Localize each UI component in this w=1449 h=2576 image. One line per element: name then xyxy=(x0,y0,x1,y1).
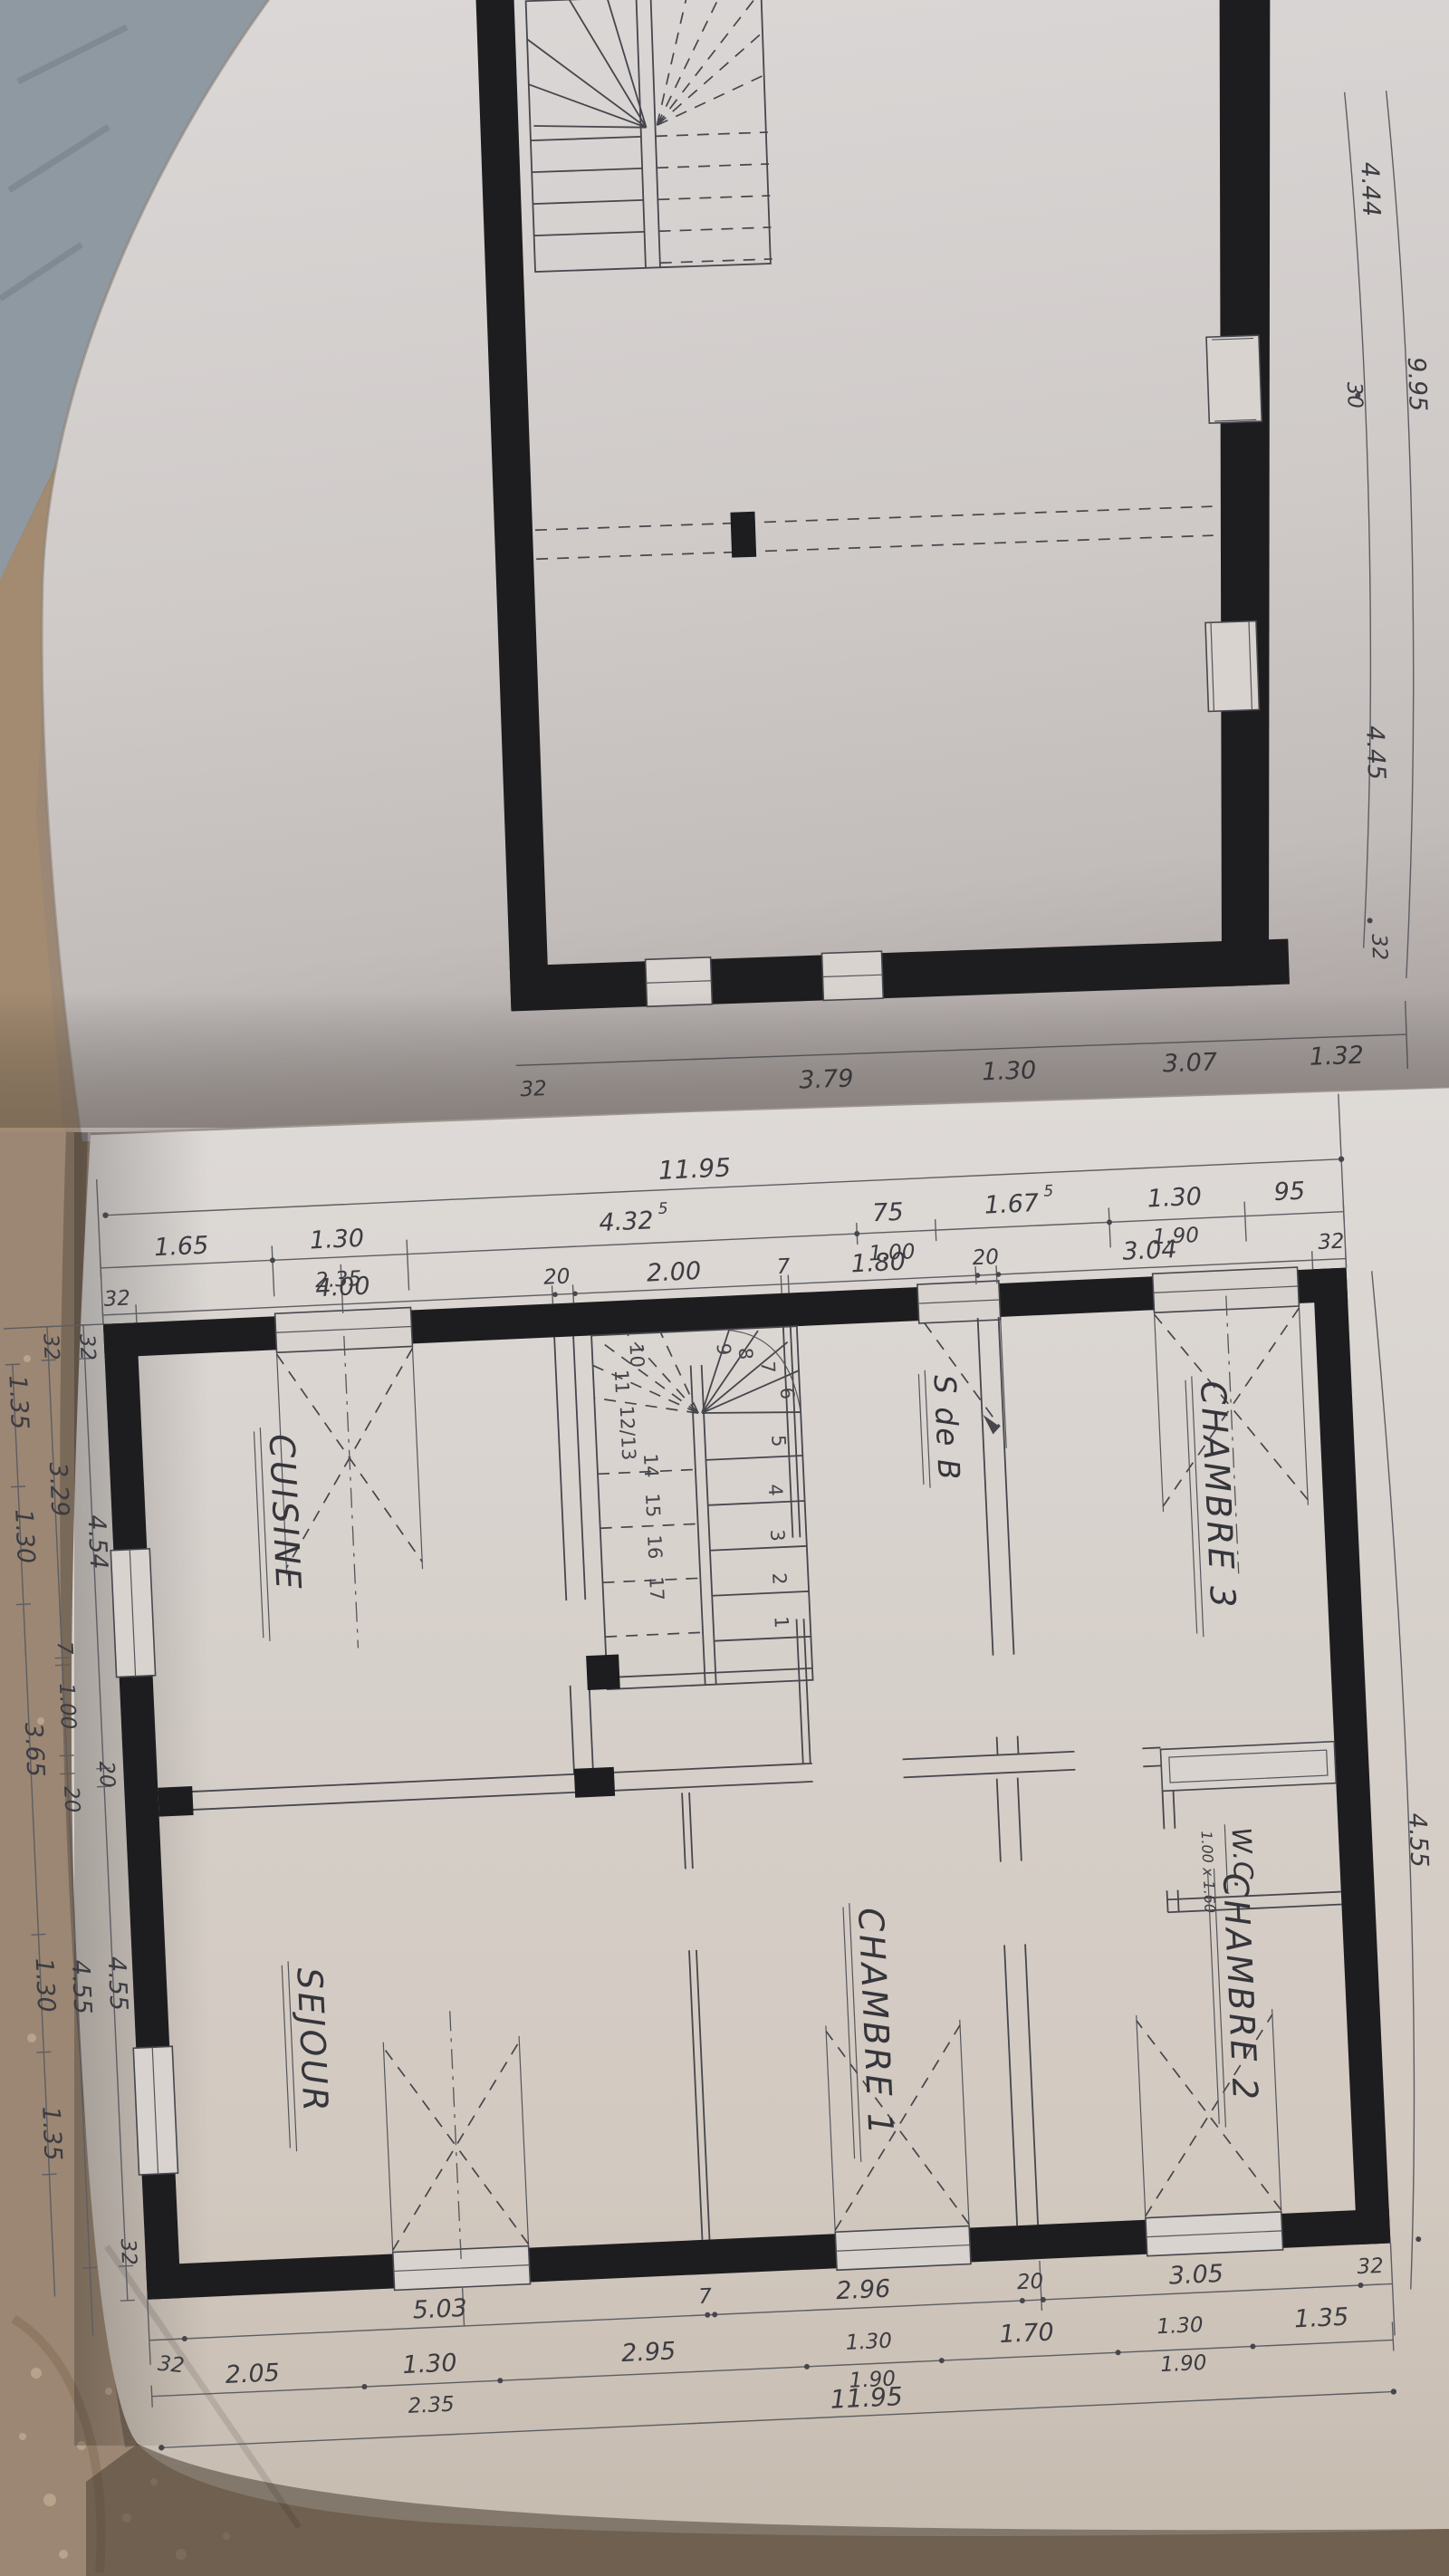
stair-number: 9 xyxy=(713,1342,735,1355)
stair-number: 8 xyxy=(734,1347,757,1360)
stair-number: 7 xyxy=(757,1360,780,1373)
stair-number: 3 xyxy=(766,1529,789,1542)
dim-label: 20 xyxy=(59,1785,83,1812)
dim-label: 3.05 xyxy=(1168,2260,1223,2291)
dim-label: 1.30 xyxy=(9,1508,40,1563)
dim-label: 4.45 xyxy=(1360,726,1390,781)
dim-label: 2.05 xyxy=(225,2359,280,2389)
dim-label: 4.44 xyxy=(1355,161,1385,216)
stair-number: 11 xyxy=(610,1369,633,1394)
dim-label: 5.03 xyxy=(412,2294,467,2325)
dim-label: 1.30 xyxy=(30,1957,61,2013)
dim-label: 32 xyxy=(74,1333,99,1360)
dim-label: 20 xyxy=(543,1264,571,1289)
dim-label: 2.00 xyxy=(646,1257,701,1288)
room-label-sdb: S de B xyxy=(926,1374,966,1482)
dim-label: 1.30 xyxy=(309,1225,364,1255)
dim-label: 32 xyxy=(1367,934,1391,961)
stair-number: 1 xyxy=(770,1616,792,1629)
stair-number: 17 xyxy=(645,1576,667,1601)
stair-number: 2 xyxy=(768,1572,791,1585)
floor-plan-photo: 4.44 30 4.45 32 9.95 32 3.79 1.30 3.07 1… xyxy=(0,0,1449,2576)
dim-label: 32 xyxy=(157,2352,186,2379)
dim-label: 1.35 xyxy=(3,1375,34,1430)
dim-label: 75 xyxy=(872,1198,905,1228)
dim-label: 4.00 xyxy=(315,1273,370,1303)
dim-label: 7 xyxy=(698,2285,713,2310)
dim-label: 3.65 xyxy=(19,1722,50,1777)
dim-label: 1.30 xyxy=(1156,2313,1204,2339)
dim-label: 32 xyxy=(1357,2254,1384,2279)
dim-label: 4.32 xyxy=(599,1206,654,1237)
stair-number: 10 xyxy=(626,1343,648,1369)
dim-label: 4.55 xyxy=(66,1959,97,2014)
stair-number: 12/13 xyxy=(616,1405,640,1461)
dim-label: 5 xyxy=(657,1199,668,1217)
dim-label: 4.55 xyxy=(1403,1812,1434,1868)
dim-label: 5 xyxy=(1043,1182,1054,1200)
dim-label: 4.54 xyxy=(82,1514,113,1570)
dim-label: 20 xyxy=(94,1761,119,1788)
stair-number: 5 xyxy=(767,1435,790,1447)
dim-label: 1.80 xyxy=(850,1248,906,1279)
dim-label: 1.35 xyxy=(36,2106,67,2161)
dim-label: 1.90 xyxy=(1160,2351,1207,2377)
dim-total-top: 11.95 xyxy=(657,1152,732,1186)
dim-label: 95 xyxy=(1273,1177,1306,1207)
dim-label: 1.70 xyxy=(999,2318,1054,2349)
dim-label: 4.55 xyxy=(102,1956,133,2011)
dim-label: 2.35 xyxy=(408,2393,455,2418)
dim-label: 32 xyxy=(1318,1230,1345,1254)
dim-label: 3.29 xyxy=(43,1462,74,1517)
dim-label: 3.04 xyxy=(1122,1235,1177,1266)
dim-label: 30 xyxy=(1342,381,1367,409)
dim-label: 32 xyxy=(116,2238,140,2265)
dim-label: 9.95 xyxy=(1402,357,1432,412)
dim-label: 2.95 xyxy=(620,2337,676,2368)
dim-label: 20 xyxy=(1016,2270,1043,2294)
dim-label: 1.30 xyxy=(402,2349,457,2379)
stair-number: 6 xyxy=(776,1387,799,1399)
dim-label: 7 xyxy=(776,1254,791,1279)
dim-label: 1.35 xyxy=(1293,2303,1348,2334)
dim-label: 2.96 xyxy=(836,2275,891,2306)
photo-of-floor-plan: 4.44 30 4.45 32 9.95 32 3.79 1.30 3.07 1… xyxy=(0,0,1449,2576)
stair-number: 4 xyxy=(764,1484,787,1496)
stair-number: 16 xyxy=(643,1534,666,1560)
stair-number: 14 xyxy=(639,1453,662,1478)
dim-label: 32 xyxy=(38,1333,62,1360)
dim-label: 20 xyxy=(972,1245,999,1270)
dim-label: 1.65 xyxy=(153,1232,208,1263)
dim-label: 32 xyxy=(103,1287,130,1312)
dim-label: 1.30 xyxy=(1147,1183,1202,1214)
dim-label: 7 xyxy=(53,1641,77,1656)
stair-number: 15 xyxy=(641,1493,664,1518)
dim-label: 1.00 xyxy=(54,1683,80,1730)
dim-label: 1.30 xyxy=(845,2330,892,2355)
room-label-cuisine: CUISINE xyxy=(262,1433,309,1592)
dim-label: 1.67 xyxy=(984,1189,1039,1220)
dim-total-bottom: 11.95 xyxy=(830,2381,904,2415)
room-label-sejour: SEJOUR xyxy=(289,1966,335,2114)
